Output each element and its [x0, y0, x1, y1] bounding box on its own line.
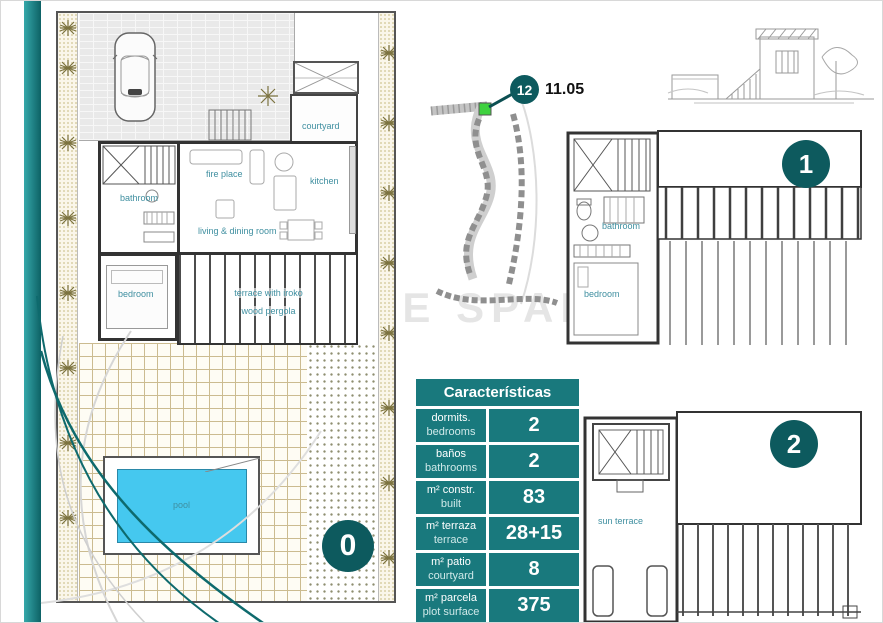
characteristics-table: Características dormits. bedrooms 2 baño…	[416, 379, 579, 622]
fp1-bedroom-label: bedroom	[584, 289, 620, 299]
elevation-sketch	[664, 13, 881, 113]
kitchen-label: kitchen	[310, 176, 339, 186]
row-courtyard-value: 8	[489, 553, 579, 586]
first-floor-badge: 1	[782, 140, 830, 188]
ground-floor-plan: courtyard	[56, 11, 396, 603]
ground-floor-badge: 0	[322, 520, 374, 572]
row-bedrooms-label: dormits. bedrooms	[416, 409, 486, 442]
terrace-label: terrace with iroko wood pergola	[186, 283, 351, 319]
row-terrace-value: 28+15	[489, 517, 579, 550]
site-plan	[421, 79, 561, 314]
floorplan-sheet: ESTATE SPAIN	[0, 0, 883, 623]
left-accent-bar	[24, 1, 41, 623]
storage-room	[293, 61, 359, 94]
car-icon	[112, 29, 158, 125]
palm-band-left	[58, 13, 78, 603]
second-floor-drawing	[581, 406, 864, 623]
plot-marker-square	[479, 103, 491, 115]
row-bathrooms-label: baños bathrooms	[416, 445, 486, 478]
row-terrace-label: m² terraza terrace	[416, 517, 486, 550]
palm-band-right	[378, 13, 396, 603]
palm-trees-right-icon	[379, 13, 396, 603]
palm-tree-icon	[255, 83, 281, 109]
bedroom-label: bedroom	[118, 289, 154, 299]
pool-skimmer-line	[205, 458, 260, 472]
plot-elevation-value: 11.05	[545, 81, 584, 99]
courtyard-label: courtyard	[302, 121, 340, 131]
fp1-bathroom-label: bathroom	[602, 221, 640, 231]
row-built-value: 83	[489, 481, 579, 514]
row-plot-value: 375	[489, 589, 579, 622]
driveway	[79, 13, 295, 141]
fp2-sun-terrace-label: sun terrace	[598, 516, 643, 526]
plot-number-badge: 12	[510, 75, 539, 104]
exterior-stairs-icon	[208, 109, 252, 141]
table-title: Características	[416, 379, 579, 406]
storage-hatch-icon	[295, 63, 357, 92]
living-dining-label: living & dining room	[198, 226, 277, 236]
palm-trees-left-icon	[58, 13, 78, 603]
second-floor-badge: 2	[770, 420, 818, 468]
row-bedrooms-value: 2	[489, 409, 579, 442]
row-bathrooms-value: 2	[489, 445, 579, 478]
row-built-label: m² constr. built	[416, 481, 486, 514]
second-floor-plan: sun terrace	[581, 406, 864, 623]
row-courtyard-label: m² patio courtyard	[416, 553, 486, 586]
pool-label: pool	[173, 500, 190, 510]
interior-stairs-icon	[102, 145, 176, 185]
bathroom-label: bathroom	[120, 193, 158, 203]
kitchen-counter	[349, 146, 356, 234]
fireplace-label: fire place	[206, 169, 243, 179]
row-plot-label: m² parcela plot surface	[416, 589, 486, 622]
pool-deck: pool	[103, 456, 260, 555]
